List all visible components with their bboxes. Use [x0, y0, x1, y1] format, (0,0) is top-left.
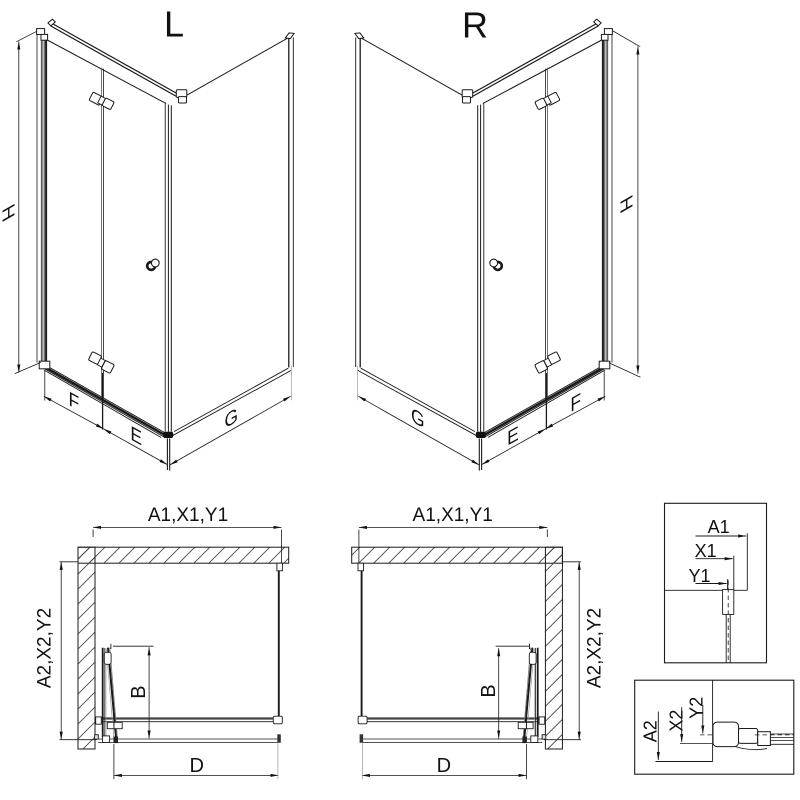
- svg-text:L: L: [164, 3, 184, 44]
- svg-text:A1: A1: [708, 517, 730, 537]
- svg-text:R: R: [462, 4, 488, 45]
- svg-text:X2: X2: [666, 710, 686, 732]
- svg-text:A2,X2,Y2: A2,X2,Y2: [584, 608, 605, 688]
- svg-text:B: B: [478, 684, 500, 697]
- svg-text:B: B: [128, 685, 150, 698]
- svg-text:A1,X1,Y1: A1,X1,Y1: [413, 505, 493, 526]
- svg-text:A2: A2: [641, 720, 661, 742]
- svg-text:A1,X1,Y1: A1,X1,Y1: [148, 505, 228, 526]
- svg-text:A2,X2,Y2: A2,X2,Y2: [34, 608, 55, 688]
- svg-text:Y1: Y1: [688, 566, 710, 586]
- svg-text:X1: X1: [695, 541, 717, 561]
- svg-text:D: D: [437, 755, 451, 777]
- svg-text:D: D: [189, 755, 203, 777]
- svg-text:Y2: Y2: [687, 697, 707, 719]
